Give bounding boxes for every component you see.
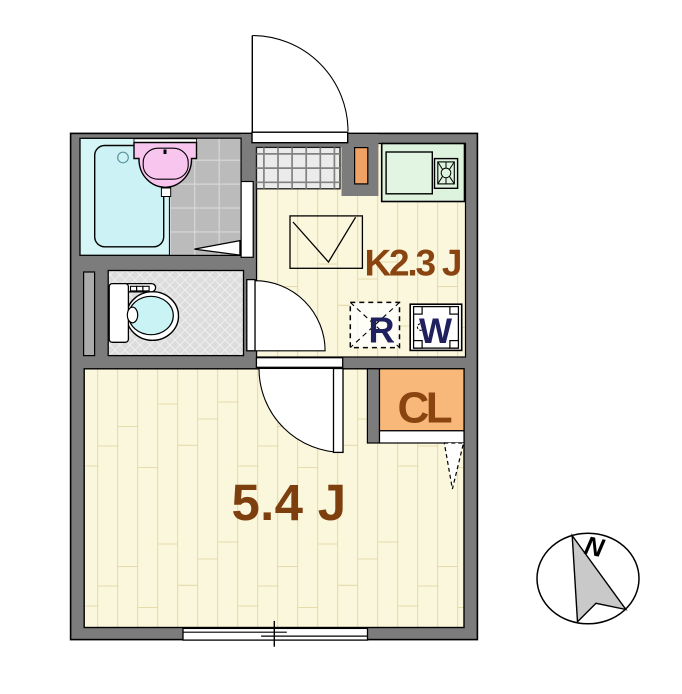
svg-text:K2.3 J: K2.3 J bbox=[365, 243, 461, 284]
svg-text:W: W bbox=[419, 312, 452, 351]
svg-text:5.4 J: 5.4 J bbox=[232, 474, 347, 531]
svg-text:CL: CL bbox=[398, 384, 452, 433]
svg-text:R: R bbox=[369, 309, 395, 350]
